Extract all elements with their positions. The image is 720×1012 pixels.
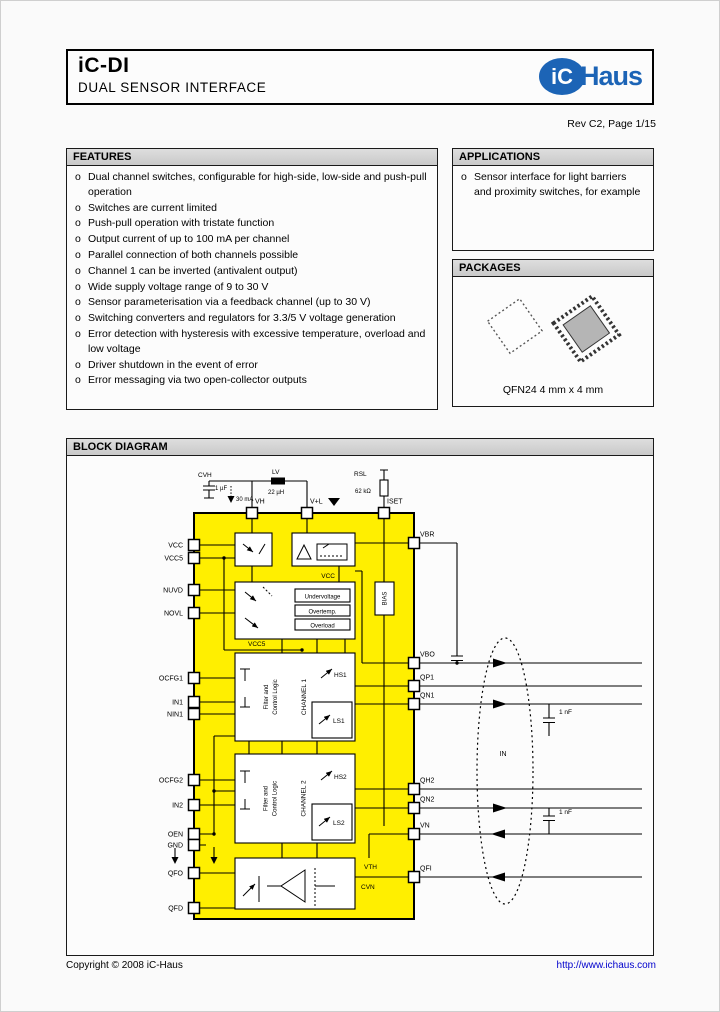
feature-item-text: Driver shutdown in the event of error [88, 358, 258, 373]
pin-NOVL [189, 608, 200, 619]
feature-item-text: Push-pull operation with tristate functi… [88, 216, 274, 231]
block-diagram-heading: BLOCK DIAGRAM [67, 439, 653, 456]
arrow-right-qn1 [493, 700, 507, 709]
packages-heading: PACKAGES [453, 260, 653, 277]
pin-label-QFO: QFO [168, 871, 184, 878]
arrow-down-gnd [172, 857, 179, 864]
cvh-value: 1 µF [215, 486, 227, 492]
package-caption: QFN24 4 mm x 4 mm [461, 383, 645, 398]
feature-item-text: Output current of up to 100 mA per chann… [88, 232, 289, 247]
feature-item: oChannel 1 can be inverted (antivalent o… [75, 264, 429, 279]
rsl-label: RSL [354, 471, 367, 478]
pin-OCFG2 [189, 775, 200, 786]
pin-label-QN2: QN2 [420, 797, 435, 804]
pin-VCC5 [189, 553, 200, 564]
feature-item-text: Channel 1 can be inverted (antivalent ou… [88, 264, 298, 279]
bullet: o [75, 248, 88, 263]
pin-IN2 [189, 800, 200, 811]
pin-label-QFD: QFD [168, 906, 183, 913]
pin-QFO [189, 868, 200, 879]
features-heading: FEATURES [67, 149, 437, 166]
bullet: o [75, 216, 88, 231]
vcc-node-label: VCC [321, 573, 335, 580]
current-value: 30 mA [236, 497, 253, 503]
undervoltage-label: Undervoltage [305, 595, 341, 601]
pin-QN1 [409, 699, 420, 710]
feature-item-text: Parallel connection of both channels pos… [88, 248, 298, 263]
pin-OCFG1 [189, 673, 200, 684]
pin-label-OCFG2: OCFG2 [159, 778, 183, 785]
pin-label-VN: VN [420, 823, 430, 830]
bullet: o [75, 170, 88, 200]
ls1-label: LS1 [333, 718, 345, 725]
pin-label-OCFG1: OCFG1 [159, 676, 183, 683]
arrow-left-qfi [491, 873, 505, 882]
pin-GND [189, 840, 200, 851]
feature-item-text: Error detection with hysteresis with exc… [88, 327, 429, 357]
lv-value: 22 µH [268, 490, 284, 496]
header: iC-DI DUAL SENSOR INTERFACE iC Haus [66, 49, 654, 105]
cvh-label: CVH [198, 472, 212, 479]
feature-item: oError detection with hysteresis with ex… [75, 327, 429, 357]
overtemp-label: Overtemp. [308, 610, 336, 616]
bullet: o [75, 232, 88, 247]
feature-item-text: Wide supply voltage range of 9 to 30 V [88, 280, 268, 295]
ichaus-logo: iC Haus [539, 58, 642, 95]
pin-IN1 [189, 697, 200, 708]
pin-VBR [409, 538, 420, 549]
packages-section: PACKAGES QFN24 4 mm x 4 mm [452, 259, 654, 407]
bullet: o [75, 264, 88, 279]
sensor-in-label: IN [500, 751, 507, 758]
page-title: iC-DI [78, 54, 130, 78]
block-diagram-svg: Undervoltage Overtemp. Overload BIAS CHA… [67, 456, 653, 955]
feature-item: oWide supply voltage range of 9 to 30 V [75, 280, 429, 295]
pin-label-NIN1: NIN1 [167, 712, 183, 719]
pin-label-QFI: QFI [420, 866, 432, 873]
pin-label-VCC: VCC [168, 543, 183, 550]
pin-ISET [379, 508, 390, 519]
bullet: o [75, 311, 88, 326]
qfn-outline-dotted [488, 299, 543, 354]
feature-item: oSensor parameterisation via a feedback … [75, 295, 429, 310]
pin-VN [409, 829, 420, 840]
arrow-down-current [228, 496, 235, 503]
pin-QP1 [409, 681, 420, 692]
application-item: oSensor interface for light barriers and… [461, 170, 645, 200]
ls1-box [312, 702, 352, 738]
applications-section: APPLICATIONS oSensor interface for light… [452, 148, 654, 251]
bullet: o [75, 373, 88, 388]
pin-VCC [189, 540, 200, 551]
ch2-filter-label-2: Control Logic [273, 781, 279, 816]
feature-item: oPush-pull operation with tristate funct… [75, 216, 429, 231]
pin-label-NOVL: NOVL [164, 611, 183, 618]
bullet: o [75, 358, 88, 373]
copyright-text: Copyright © 2008 iC-Haus [66, 960, 183, 971]
cap-qn2-value: 1 nF [559, 809, 572, 816]
ch1-filter-label-1: Filter and [264, 684, 270, 709]
qfn-outline-solid [554, 296, 619, 361]
vth-label: VTH [364, 864, 377, 871]
bullet: o [75, 295, 88, 310]
block-diagram-section: BLOCK DIAGRAM [66, 438, 654, 956]
bullet: o [461, 170, 474, 200]
cap-qn1-value: 1 nF [559, 709, 572, 716]
pin-VH [247, 508, 258, 519]
bullet: o [75, 201, 88, 216]
pin-label-VH: VH [255, 499, 265, 506]
pin-label-VBR: VBR [420, 532, 434, 539]
sensor-ellipse [477, 638, 533, 904]
feature-item: oSwitching converters and regulators for… [75, 311, 429, 326]
overload-label: Overload [310, 624, 334, 630]
feature-item: oError messaging via two open-collector … [75, 373, 429, 388]
feedback-block [235, 858, 355, 909]
channel2-label: CHANNEL 2 [301, 780, 308, 817]
pin-label-ISET: ISET [387, 499, 403, 506]
pin-label-GND: GND [167, 843, 183, 850]
feature-item-text: Dual channel switches, configurable for … [88, 170, 429, 200]
application-item-text: Sensor interface for light barriers and … [474, 170, 645, 200]
applications-list: oSensor interface for light barriers and… [453, 166, 653, 203]
pin-OEN [189, 829, 200, 840]
ls2-label: LS2 [333, 820, 345, 827]
datasheet-page: iC-DI DUAL SENSOR INTERFACE iC Haus Rev … [0, 0, 720, 1012]
revision-text: Rev C2, Page 1/15 [567, 118, 656, 130]
channel1-label: CHANNEL 1 [301, 678, 308, 715]
logo-ic-icon: iC [539, 58, 585, 95]
rsl-value: 62 kΩ [355, 489, 371, 495]
pin-QFI [409, 872, 420, 883]
ch1-filter-label-2: Control Logic [273, 679, 279, 714]
applications-heading: APPLICATIONS [453, 149, 653, 166]
pin-NIN1 [189, 709, 200, 720]
pin-NUVD [189, 585, 200, 596]
pin-label-QP1: QP1 [420, 675, 434, 682]
external-wires [420, 543, 643, 877]
feature-item: oDual channel switches, configurable for… [75, 170, 429, 200]
pin-label-QN1: QN1 [420, 693, 435, 700]
website-link[interactable]: http://www.ichaus.com [557, 960, 656, 971]
arrow-right-qn2 [493, 804, 507, 813]
features-section: FEATURES oDual channel switches, configu… [66, 148, 438, 410]
ch2-filter-label-1: Filter and [264, 786, 270, 811]
qfn-package-image [461, 280, 647, 376]
features-list: oDual channel switches, configurable for… [67, 166, 437, 391]
bias-label: BIAS [383, 592, 389, 606]
lv-label: LV [272, 469, 280, 476]
feature-item: oSwitches are current limited [75, 201, 429, 216]
pin-QH2 [409, 784, 420, 795]
pin-label-V+L: V+L [310, 499, 323, 506]
ls2-box [312, 804, 352, 840]
pin-label-VCC5: VCC5 [164, 556, 183, 563]
feature-item-text: Switching converters and regulators for … [88, 311, 396, 326]
feature-item: oDriver shutdown in the event of error [75, 358, 429, 373]
page-subtitle: DUAL SENSOR INTERFACE [78, 80, 266, 95]
vcc5-node-label: VCC5 [248, 641, 266, 648]
pin-QFD [189, 903, 200, 914]
pin-label-QH2: QH2 [420, 778, 435, 785]
pin-label-IN1: IN1 [172, 700, 183, 707]
pin-V+L [302, 508, 313, 519]
bullet: o [75, 327, 88, 357]
feature-item-text: Switches are current limited [88, 201, 217, 216]
hs1-label: HS1 [334, 672, 347, 679]
cvn-label: CVN [361, 884, 375, 891]
pin-label-IN2: IN2 [172, 803, 183, 810]
package-body: QFN24 4 mm x 4 mm [453, 277, 653, 400]
resistor-rsl-icon [380, 480, 388, 496]
feature-item: oOutput current of up to 100 mA per chan… [75, 232, 429, 247]
pin-QN2 [409, 803, 420, 814]
pin-VBO [409, 658, 420, 669]
ground-triangle-icon [328, 498, 340, 506]
pin-label-OEN: OEN [168, 832, 183, 839]
hs2-label: HS2 [334, 774, 347, 781]
bullet: o [75, 280, 88, 295]
feature-item-text: Sensor parameterisation via a feedback c… [88, 295, 371, 310]
inductor-lv-icon [271, 478, 285, 485]
arrow-left-vn [491, 830, 505, 839]
charge-pump-block [235, 533, 272, 566]
pin-label-NUVD: NUVD [163, 588, 183, 595]
logo-haus-text: Haus [580, 61, 642, 92]
arrow-right-vbo [493, 659, 507, 668]
pin-label-VBO: VBO [420, 652, 435, 659]
feature-item: oParallel connection of both channels po… [75, 248, 429, 263]
feature-item-text: Error messaging via two open-collector o… [88, 373, 307, 388]
